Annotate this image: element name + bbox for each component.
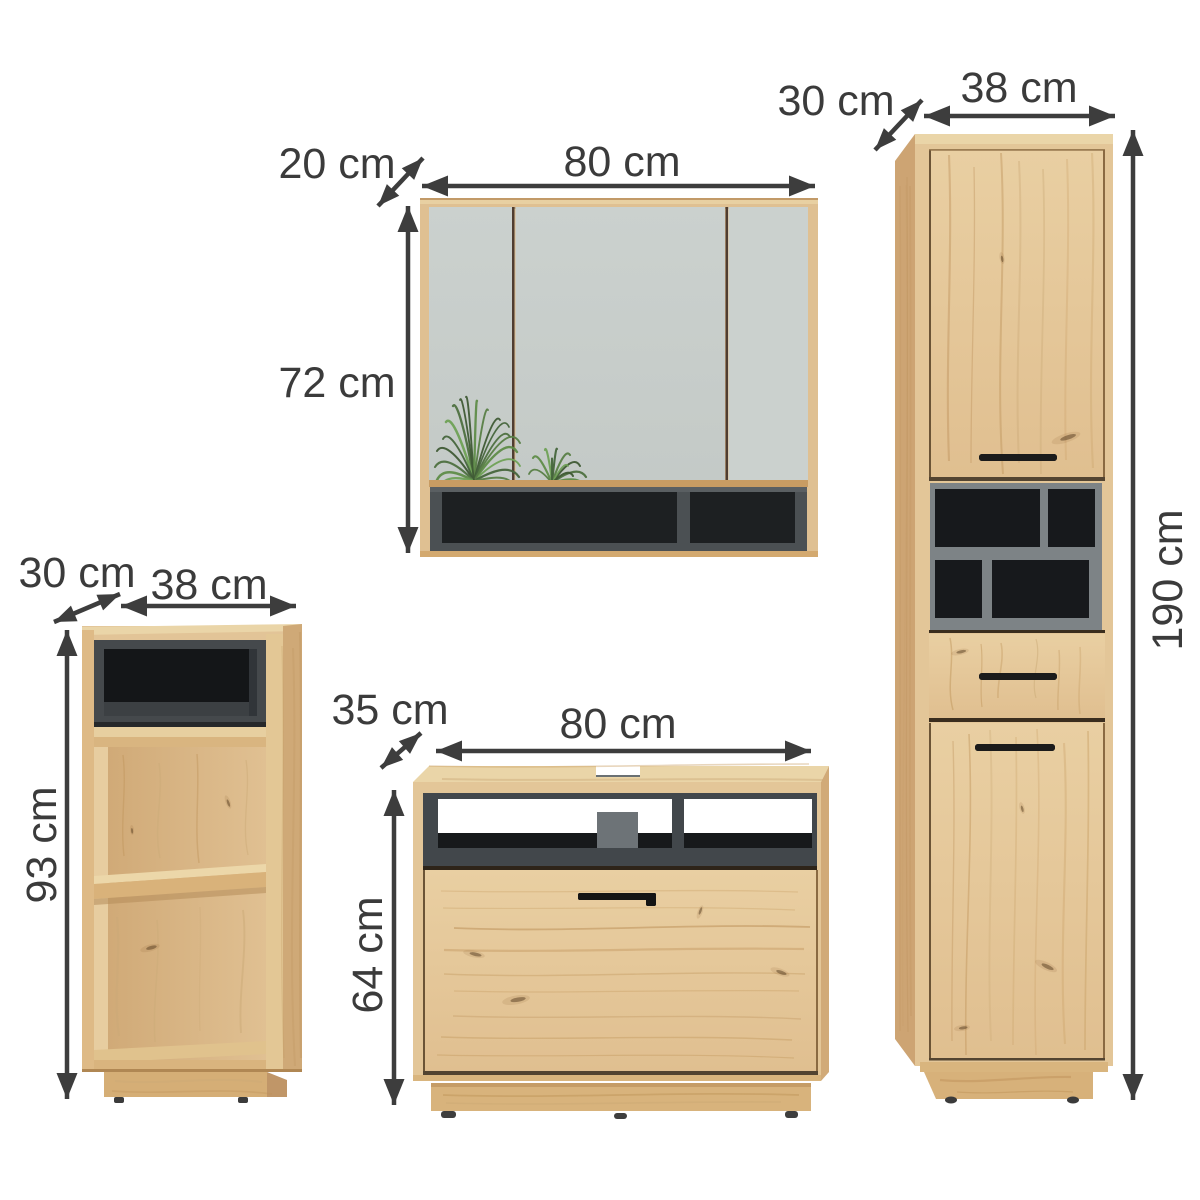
svg-text:38 cm: 38 cm: [150, 561, 267, 609]
svg-text:72 cm: 72 cm: [278, 359, 395, 407]
svg-text:190 cm: 190 cm: [1144, 509, 1192, 650]
svg-text:38 cm: 38 cm: [960, 64, 1077, 112]
svg-text:30 cm: 30 cm: [18, 549, 135, 597]
svg-text:35 cm: 35 cm: [331, 686, 448, 734]
svg-text:93 cm: 93 cm: [18, 786, 66, 903]
svg-text:80 cm: 80 cm: [563, 138, 680, 186]
svg-text:20 cm: 20 cm: [278, 140, 395, 188]
svg-text:64 cm: 64 cm: [344, 896, 392, 1013]
svg-text:30 cm: 30 cm: [777, 77, 894, 125]
svg-text:80 cm: 80 cm: [559, 700, 676, 748]
